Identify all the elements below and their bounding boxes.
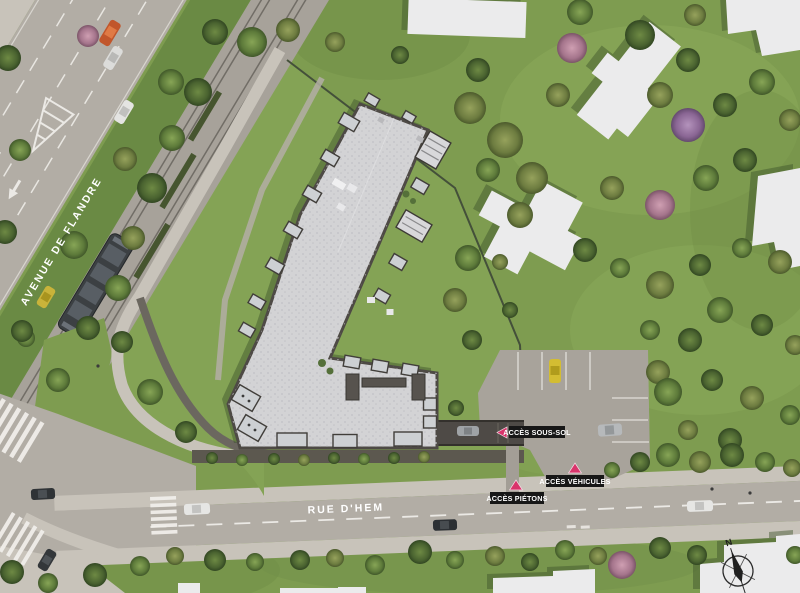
tree — [408, 540, 432, 564]
neighbor-building — [401, 0, 526, 38]
tree — [121, 226, 145, 250]
tree — [111, 331, 133, 353]
tree — [779, 109, 800, 131]
car — [598, 423, 623, 437]
car — [31, 488, 56, 500]
tree — [476, 158, 500, 182]
tree — [290, 550, 310, 570]
tree — [137, 379, 163, 405]
tree — [600, 176, 624, 200]
tree — [454, 92, 486, 124]
car — [184, 503, 211, 515]
tree — [9, 139, 31, 161]
tree — [204, 549, 226, 571]
tree — [649, 537, 671, 559]
tree — [76, 316, 100, 340]
neighbor-building — [338, 587, 366, 593]
tree — [516, 162, 548, 194]
tree — [589, 547, 607, 565]
tree — [740, 386, 764, 410]
tree — [573, 238, 597, 262]
tree — [610, 258, 630, 278]
tree — [11, 320, 33, 342]
tree — [137, 173, 167, 203]
tree — [83, 563, 107, 587]
tree — [502, 302, 518, 318]
tree — [647, 82, 673, 108]
tree — [546, 83, 570, 107]
tree — [755, 452, 775, 472]
tree — [608, 551, 636, 579]
tree — [462, 330, 482, 350]
bush — [358, 453, 370, 465]
tree — [391, 46, 409, 64]
tree — [0, 560, 24, 584]
tree — [567, 0, 593, 25]
tree — [656, 443, 680, 467]
bush — [206, 452, 218, 464]
tree — [166, 547, 184, 565]
tree — [443, 288, 467, 312]
tree — [557, 33, 587, 63]
tree — [105, 275, 131, 301]
tree — [77, 25, 99, 47]
neighbor-building — [178, 583, 200, 593]
bush — [236, 454, 248, 466]
tree — [676, 48, 700, 72]
tree — [276, 18, 300, 42]
tree — [485, 546, 505, 566]
car — [687, 500, 713, 512]
tree — [678, 420, 698, 440]
car — [457, 426, 479, 436]
tree — [492, 254, 508, 270]
tree — [684, 4, 706, 26]
tree — [237, 27, 267, 57]
tree — [640, 320, 660, 340]
tree — [749, 69, 775, 95]
tree — [751, 314, 773, 336]
tree — [687, 545, 707, 565]
car — [433, 519, 457, 531]
tree — [713, 93, 737, 117]
tree — [645, 190, 675, 220]
tree — [521, 553, 539, 571]
tree — [689, 254, 711, 276]
tree — [326, 549, 344, 567]
tree — [768, 250, 792, 274]
bush — [268, 453, 280, 465]
tree — [158, 69, 184, 95]
bush — [298, 454, 310, 466]
tree — [604, 462, 620, 478]
tree — [38, 573, 58, 593]
tree — [202, 19, 228, 45]
tree — [678, 328, 702, 352]
svg-text:ACCÈS SOUS-SOL: ACCÈS SOUS-SOL — [503, 428, 571, 437]
tree — [707, 297, 733, 323]
tree — [455, 245, 481, 271]
tree — [693, 165, 719, 191]
tree — [780, 405, 800, 425]
tree — [654, 378, 682, 406]
car — [549, 359, 561, 383]
access-sous-sol-label: ACCÈS SOUS-SOL — [497, 426, 571, 438]
tree — [720, 443, 744, 467]
svg-text:ACCÈS VÉHICULES: ACCÈS VÉHICULES — [539, 477, 610, 486]
site-plan-rendering: AVENUE DE FLANDRE RUE D'HEM ACCÈS SOUS-S… — [0, 0, 800, 593]
tree — [175, 421, 197, 443]
site-plan-canvas: AVENUE DE FLANDRE RUE D'HEM ACCÈS SOUS-S… — [0, 0, 800, 593]
tree — [184, 78, 212, 106]
svg-text:ACCÈS PIÉTONS: ACCÈS PIÉTONS — [486, 494, 547, 503]
tree — [325, 32, 345, 52]
tree — [555, 540, 575, 560]
tree — [689, 451, 711, 473]
tree — [701, 369, 723, 391]
tree — [159, 125, 185, 151]
tree — [113, 147, 137, 171]
tree — [246, 553, 264, 571]
tree — [671, 108, 705, 142]
tree — [466, 58, 490, 82]
tree — [487, 122, 523, 158]
tree — [365, 555, 385, 575]
tree — [130, 556, 150, 576]
tree — [646, 271, 674, 299]
tree — [732, 238, 752, 258]
tree — [625, 20, 655, 50]
tree — [446, 551, 464, 569]
tree — [46, 368, 70, 392]
bush — [388, 452, 400, 464]
tree — [448, 400, 464, 416]
bush — [418, 451, 430, 463]
tree — [507, 202, 533, 228]
tree — [733, 148, 757, 172]
tree — [630, 452, 650, 472]
bush — [328, 452, 340, 464]
